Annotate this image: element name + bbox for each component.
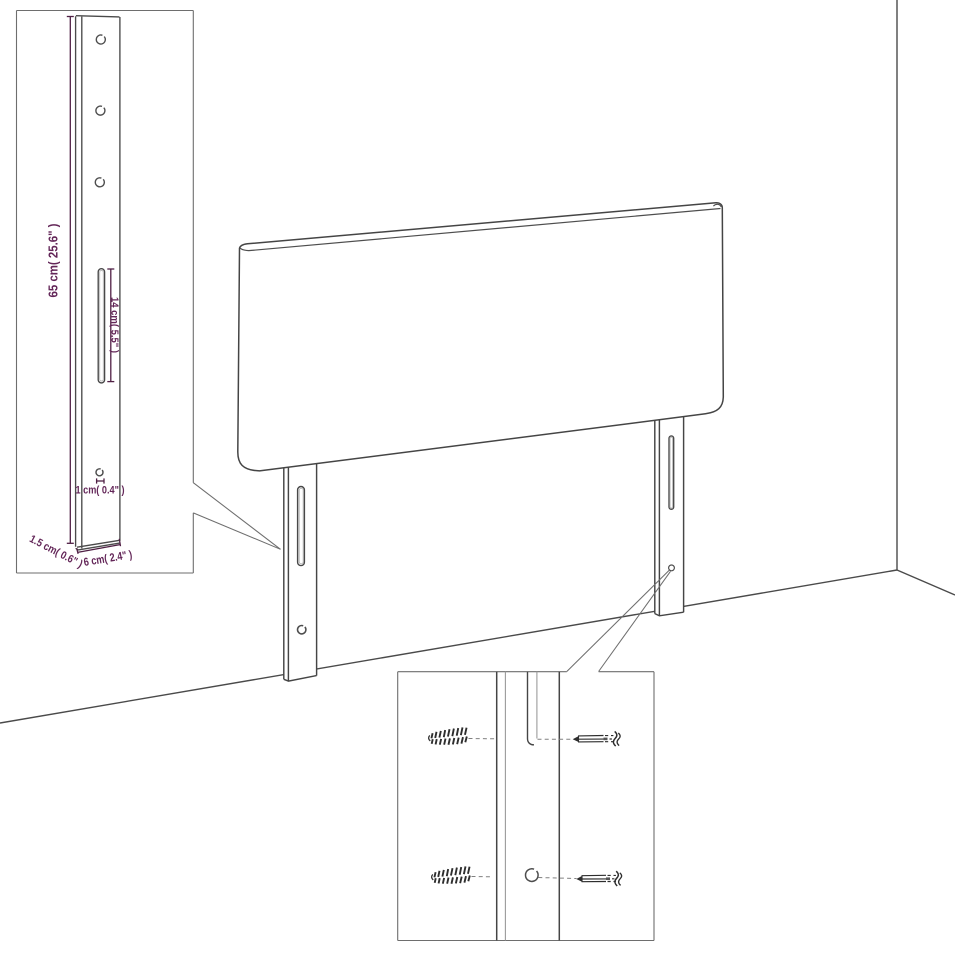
svg-text:14 cm( 5.5" ): 14 cm( 5.5" ): [109, 297, 120, 353]
svg-text:1 cm( 0.4" ): 1 cm( 0.4" ): [76, 485, 125, 497]
svg-text:65 cm( 25.6" ): 65 cm( 25.6" ): [46, 224, 61, 298]
